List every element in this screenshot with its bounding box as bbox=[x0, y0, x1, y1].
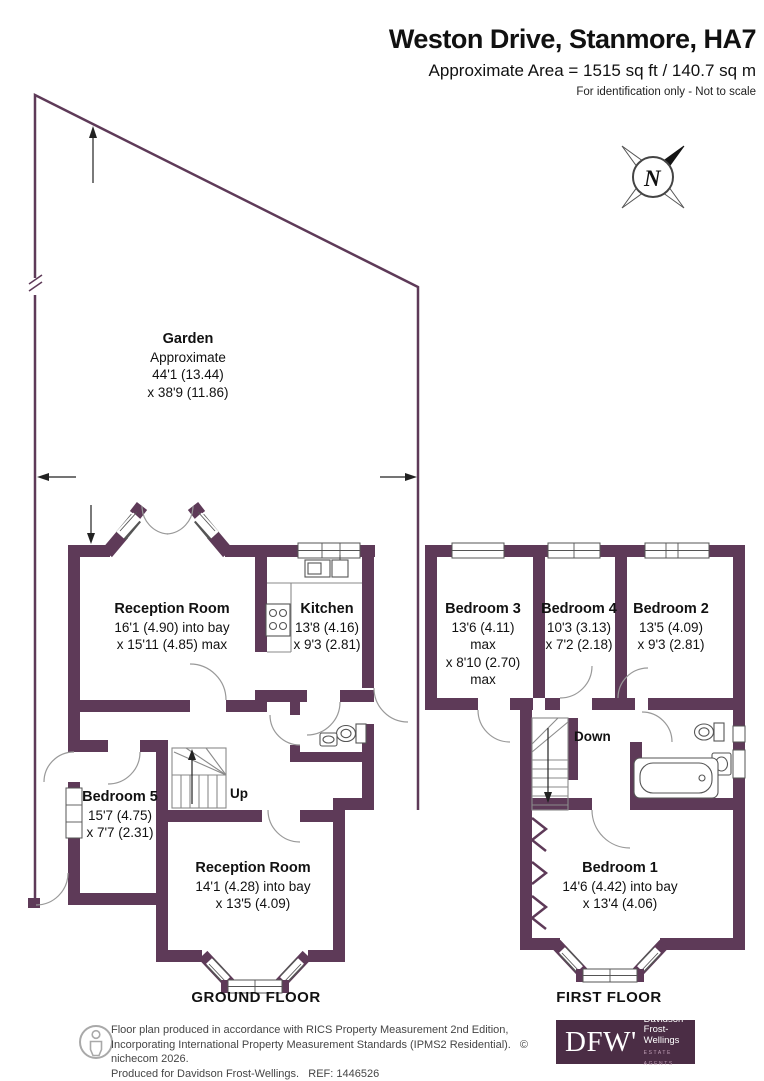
bedroom5-side-door bbox=[44, 752, 82, 782]
header: Weston Drive, Stanmore, HA7 Approximate … bbox=[389, 24, 756, 98]
room-label-bedroom-1: Bedroom 1 14'6 (4.42) into bay x 13'4 (4… bbox=[562, 860, 677, 913]
passage-door-arc bbox=[36, 873, 68, 905]
room-label-reception-room-top: Reception Room 16'1 (4.90) into bay x 15… bbox=[114, 601, 229, 654]
kitchen-window bbox=[298, 543, 360, 558]
room-label-reception-room-bottom: Reception Room 14'1 (4.28) into bay x 13… bbox=[195, 860, 310, 913]
footer-ref: Produced for Davidson Frost-Wellings. RE… bbox=[111, 1067, 559, 1081]
ipms-person-icon bbox=[80, 1026, 112, 1058]
ground-bottom-bay-window bbox=[203, 955, 307, 993]
ground-floor-plan bbox=[28, 506, 408, 993]
bedroom4-window bbox=[548, 543, 600, 558]
bathroom-toilet-icon bbox=[695, 723, 725, 741]
wc-toilet-icon bbox=[337, 724, 367, 743]
dfw-logo: DFW' Davidson Frost-Wellings ESTATE AGEN… bbox=[556, 1020, 695, 1064]
front-bay-french-doors bbox=[107, 506, 228, 553]
compass-icon: N bbox=[622, 146, 684, 208]
garden-boundary bbox=[27, 95, 418, 903]
disclaimer-note: For identification only - Not to scale bbox=[389, 86, 756, 98]
dfw-logo-name-2: Frost-Wellings bbox=[644, 1025, 695, 1046]
room-label-garden: Garden Approximate 44'1 (13.44) x 38'9 (… bbox=[147, 331, 228, 401]
floor-plan-drawing: N bbox=[0, 0, 764, 1080]
dfw-logo-initials: DFW' bbox=[565, 1028, 637, 1057]
bedroom3-window bbox=[452, 543, 504, 558]
stairs-down-label: Down bbox=[574, 729, 611, 744]
approximate-area: Approximate Area = 1515 sq ft / 140.7 sq… bbox=[389, 61, 756, 81]
dfw-logo-tagline: ESTATE AGENTS bbox=[644, 1048, 695, 1069]
bedroom5-window bbox=[66, 788, 82, 838]
room-label-kitchen: Kitchen 13'8 (4.16) x 9'3 (2.81) bbox=[293, 601, 360, 654]
stairs-up-label: Up bbox=[230, 786, 248, 801]
page-title: Weston Drive, Stanmore, HA7 bbox=[389, 24, 756, 55]
hob-icon bbox=[266, 604, 290, 636]
footer-disclaimer: Floor plan produced in accordance with R… bbox=[111, 1023, 559, 1081]
bathroom-window-2 bbox=[733, 750, 745, 778]
room-label-bedroom-3: Bedroom 3 13'6 (4.11) max x 8'10 (2.70) … bbox=[445, 601, 521, 689]
stairs-down bbox=[532, 718, 568, 810]
first-floor-label: FIRST FLOOR bbox=[556, 989, 662, 1006]
first-bottom-bay-window bbox=[556, 944, 664, 982]
bathroom-window bbox=[733, 726, 745, 742]
stairs-up bbox=[172, 748, 226, 808]
bedroom1-zigzag-wall bbox=[532, 818, 546, 929]
bedroom2-window bbox=[645, 543, 709, 558]
ground-floor-label: GROUND FLOOR bbox=[191, 989, 320, 1006]
bathroom-bath-icon bbox=[634, 758, 718, 798]
compass-north-label: N bbox=[643, 166, 662, 191]
wc-basin-icon bbox=[320, 733, 337, 746]
room-label-bedroom-5: Bedroom 5 15'7 (4.75) x 7'7 (2.31) bbox=[82, 789, 158, 842]
room-label-bedroom-4: Bedroom 4 10'3 (3.13) x 7'2 (2.18) bbox=[541, 601, 617, 654]
room-label-bedroom-2: Bedroom 2 13'5 (4.09) x 9'3 (2.81) bbox=[633, 601, 709, 654]
